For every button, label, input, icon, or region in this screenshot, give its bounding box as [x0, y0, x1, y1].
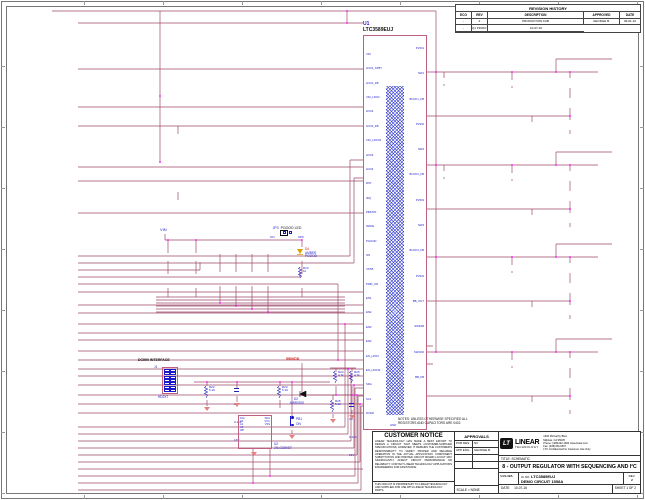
ic-pin-label: VIN_LDO34: [366, 138, 386, 142]
ic-gnd-pin: GND: [390, 424, 396, 427]
resistor-r26: R26 4.7k: [349, 371, 360, 383]
amber-led: D4AMBERPGOOD R10 1k: [296, 248, 330, 278]
ic-left-pins: VINLDO1_STBYLDO1_FBVIN_LDO2LDO2LDO2_FBVI…: [366, 52, 386, 415]
resistor-r25: R25 5.1K: [330, 400, 341, 412]
revision-cell: Q1 PINOUT MATCHES VENDOR DS, NO PCB CHAN…: [472, 25, 488, 32]
app-eng-value: GEORGE B.: [473, 448, 491, 454]
size-value: N/A: [508, 474, 513, 478]
customer-notice-title: CUSTOMER NOTICE: [373, 432, 454, 440]
revision-cell: GEORGE B.: [584, 19, 620, 26]
r23-value: R23 5.1K: [282, 386, 288, 393]
jp3-on-label: ON: [270, 235, 275, 239]
revision-cell: -: [456, 19, 472, 26]
revision-history-rows: -2PRODUCTION FABGEORGE B.09-01-10 -Q1 PI…: [456, 19, 640, 32]
ic-pin-label: EN_LDO34: [366, 368, 386, 372]
schematic-notes: NOTES: UNLESS OTHERWISE SPECIFIED ALL RE…: [398, 417, 508, 425]
ic-pin-label: PVIN4: [404, 274, 424, 278]
u2-eeprom: SCL A0 A1 A2 WP SDA VCC VSS: [238, 415, 272, 449]
gnd-symbol: [349, 415, 355, 419]
ic-pin-label: BUCK2_FB: [404, 172, 424, 176]
ic-pin-label: PGOOD: [366, 239, 386, 243]
jp3-off-label: OFF: [298, 235, 304, 239]
resistor-icon: [298, 267, 302, 278]
size-label: SIZE: [500, 474, 507, 478]
gnd-symbol: [289, 435, 295, 439]
ic-pin-label: IRQ: [366, 196, 386, 200]
proprietary-note: THIS CIRCUIT IS PROPRIETARY TO LINEAR TE…: [373, 481, 454, 493]
pb1-on-label: ON: [296, 423, 301, 427]
ic-pin-label: SW1: [404, 71, 424, 75]
ic-pin-label: LDO2: [366, 109, 386, 113]
ic-pin-label: EN2: [366, 310, 386, 314]
approvals-title: APPROVALS: [455, 432, 498, 441]
ic-part-number: LTC3589EUJ: [363, 28, 393, 34]
jp3-ref: JP3: [273, 226, 279, 230]
revision-cell: 10-07-16: [488, 25, 584, 32]
ic-pin-label: LDO1_STBY: [366, 66, 386, 70]
resistor-r23: R23 5.1K: [277, 386, 288, 398]
ic-pin-label: SW4AB: [404, 324, 424, 328]
r26-value: R26 4.7k: [354, 371, 360, 378]
u2-left-pins: SCL A0 A1 A2 WP: [240, 417, 245, 447]
gnd-symbol: [234, 403, 240, 407]
revision-cell: PRODUCTION FAB: [488, 19, 584, 26]
led-signal: PGOOD: [305, 255, 317, 259]
dc590-title: DC590 INTERFACE: [138, 358, 170, 362]
revision-history-title: REVISION HISTORY: [456, 5, 640, 12]
ic-body-ltc3589: VINLDO1_STBYLDO1_FBVIN_LDO2LDO2LDO2_FBVI…: [363, 35, 427, 430]
ic-pin-label: DVDD: [366, 411, 386, 415]
revision-cell: 09-01-10: [620, 19, 640, 26]
ic-pin-label: PVIN2: [404, 122, 424, 126]
j1-connector: [162, 367, 178, 394]
ic-pin-label: WAKE: [366, 224, 386, 228]
ic-pin-label: BUCK3_FB: [404, 248, 424, 252]
ic-pin-label: VIN_LDO2: [366, 95, 386, 99]
approvals-block: APPROVALS PCB DES.NC APP ENG.GEORGE B. S…: [455, 432, 499, 493]
ic-pin-label: SDA: [366, 382, 386, 386]
ic-pin-label: PBSTAT: [366, 210, 386, 214]
pcb-des-label: PCB DES.: [455, 441, 473, 447]
revision-col-header: APPROVED: [584, 12, 620, 19]
ic-pin-label: PWR_ON: [366, 282, 386, 286]
ic-pin-label: SW2: [404, 147, 424, 151]
ic-pin-label: EN3: [366, 325, 386, 329]
c9-value: C9 0.1uF 16V: [349, 417, 357, 457]
revision-history-header: ECOREVDESCRIPTIONAPPROVEDDATE: [456, 12, 640, 19]
revision-col-header: ECO: [456, 12, 472, 19]
pushbutton-pb1: PB1ON: [290, 416, 295, 426]
u2-right-pins: SDA VCC VSS: [265, 417, 270, 447]
led-icon: [296, 248, 304, 256]
ic-pin-label: VIN: [366, 52, 386, 56]
ic-pin-label: VSTB: [366, 267, 386, 271]
u2-part: 24LC025/ST: [274, 447, 292, 451]
ic-pin-label: EN1: [366, 296, 386, 300]
d2-part: MBR0520: [290, 402, 304, 406]
rev-value: 2: [631, 478, 633, 482]
led-vin-label: VIN: [160, 228, 167, 233]
ic-pin-label: LDO4: [366, 167, 386, 171]
schematic-title: 8 - OUTPUT REGULATOR WITH SEQUENCING AND…: [499, 462, 640, 473]
lt-logo-icon: LT: [500, 438, 513, 449]
ic-right-pins: PVIN1SW1BUCK1_FBPVIN2SW2BUCK2_FBPVIN3SW3…: [404, 46, 424, 379]
date-label: DATE:: [499, 485, 512, 493]
r22-value: R22 5.1K: [209, 386, 215, 393]
customer-notice-body: LINEAR TECHNOLOGY HAS MADE A BEST EFFORT…: [373, 440, 454, 481]
revision-col-header: DESCRIPTION: [488, 12, 584, 19]
ic-pin-label: EN4: [366, 339, 386, 343]
net-590vdd: 590VDD: [286, 357, 299, 361]
pcb-des-value: NC: [473, 441, 478, 447]
ic-pin-label: PVIN1: [404, 46, 424, 50]
gnd-symbol: [251, 452, 257, 456]
ic-pin-label: BB_OUT: [404, 299, 424, 303]
j1-part: HD2X7: [158, 396, 168, 400]
revision-cell: 2: [472, 19, 488, 26]
r24-value: R24 4.7k: [338, 371, 344, 378]
ic-hatch-fill: [386, 86, 404, 415]
ic-pin-label: SW4CD: [404, 350, 424, 354]
ic-pin-label: EN_LDO2: [366, 354, 386, 358]
app-eng-label: APP ENG.: [455, 448, 473, 454]
ic-pin-label: RST: [366, 181, 386, 185]
ic-pin-label: ON: [366, 253, 386, 257]
company-subname: TECHNOLOGY: [515, 446, 539, 449]
ic-pin-label: LDO3: [366, 153, 386, 157]
revision-col-header: DATE: [620, 12, 640, 19]
ic-pin-label: SW3: [404, 223, 424, 227]
dc590-interface-section: DC590 INTERFACE J1 HD2X7 R22 5.1K C8 0.1…: [130, 355, 360, 465]
diode-icon: [298, 391, 308, 397]
ic-pin-label: SCL: [366, 397, 386, 401]
gnd-symbol: [204, 407, 210, 411]
r25-value: R25 5.1K: [335, 400, 341, 407]
title-block-main: LT LINEARTECHNOLOGY 1630 McCarthy Blvd. …: [499, 432, 640, 493]
date-value: 10-07-16: [512, 485, 529, 493]
ic-pin-label: LDO1_FB: [366, 81, 386, 85]
resistor-value: R10 1k: [303, 267, 309, 274]
jp3-pins-icon: [266, 231, 308, 234]
customer-notice: CUSTOMER NOTICE LINEAR TECHNOLOGY HAS MA…: [373, 432, 455, 493]
ic-reference: U1 LTC3589EUJ: [363, 22, 393, 34]
resistor-r24: R24 4.7k: [333, 371, 344, 383]
ic-pin-label: BB_FB: [404, 375, 424, 379]
revision-col-header: REV: [472, 12, 488, 19]
capacitor-c9: C9 0.1uF 16V: [349, 403, 357, 461]
revision-cell: -: [456, 25, 472, 32]
ic-pin-label: PVIN3: [404, 198, 424, 202]
demo-circuit: DEMO CIRCUIT 1558A: [521, 479, 563, 484]
confidential-note: LTC Confidential-For Customer Use Only: [543, 448, 590, 451]
jumper-jp3: JP3PGOOD LED ONOFF: [266, 226, 308, 239]
gnd-symbol: [330, 419, 336, 423]
resistor-r22: R22 5.1K: [204, 386, 215, 398]
scale-label: SCALE = NONE: [455, 485, 498, 493]
ic-pin-label: LDO2_FB: [366, 124, 386, 128]
sheet-number: SHEET 1 OF 2: [612, 485, 640, 493]
ic-pin-label: BUCK1_FB: [404, 97, 424, 101]
title-block: CUSTOMER NOTICE LINEAR TECHNOLOGY HAS MA…: [372, 431, 641, 494]
j1-ref: J1: [154, 366, 157, 370]
revision-history-table: REVISION HISTORY ECOREVDESCRIPTIONAPPROV…: [455, 4, 641, 33]
